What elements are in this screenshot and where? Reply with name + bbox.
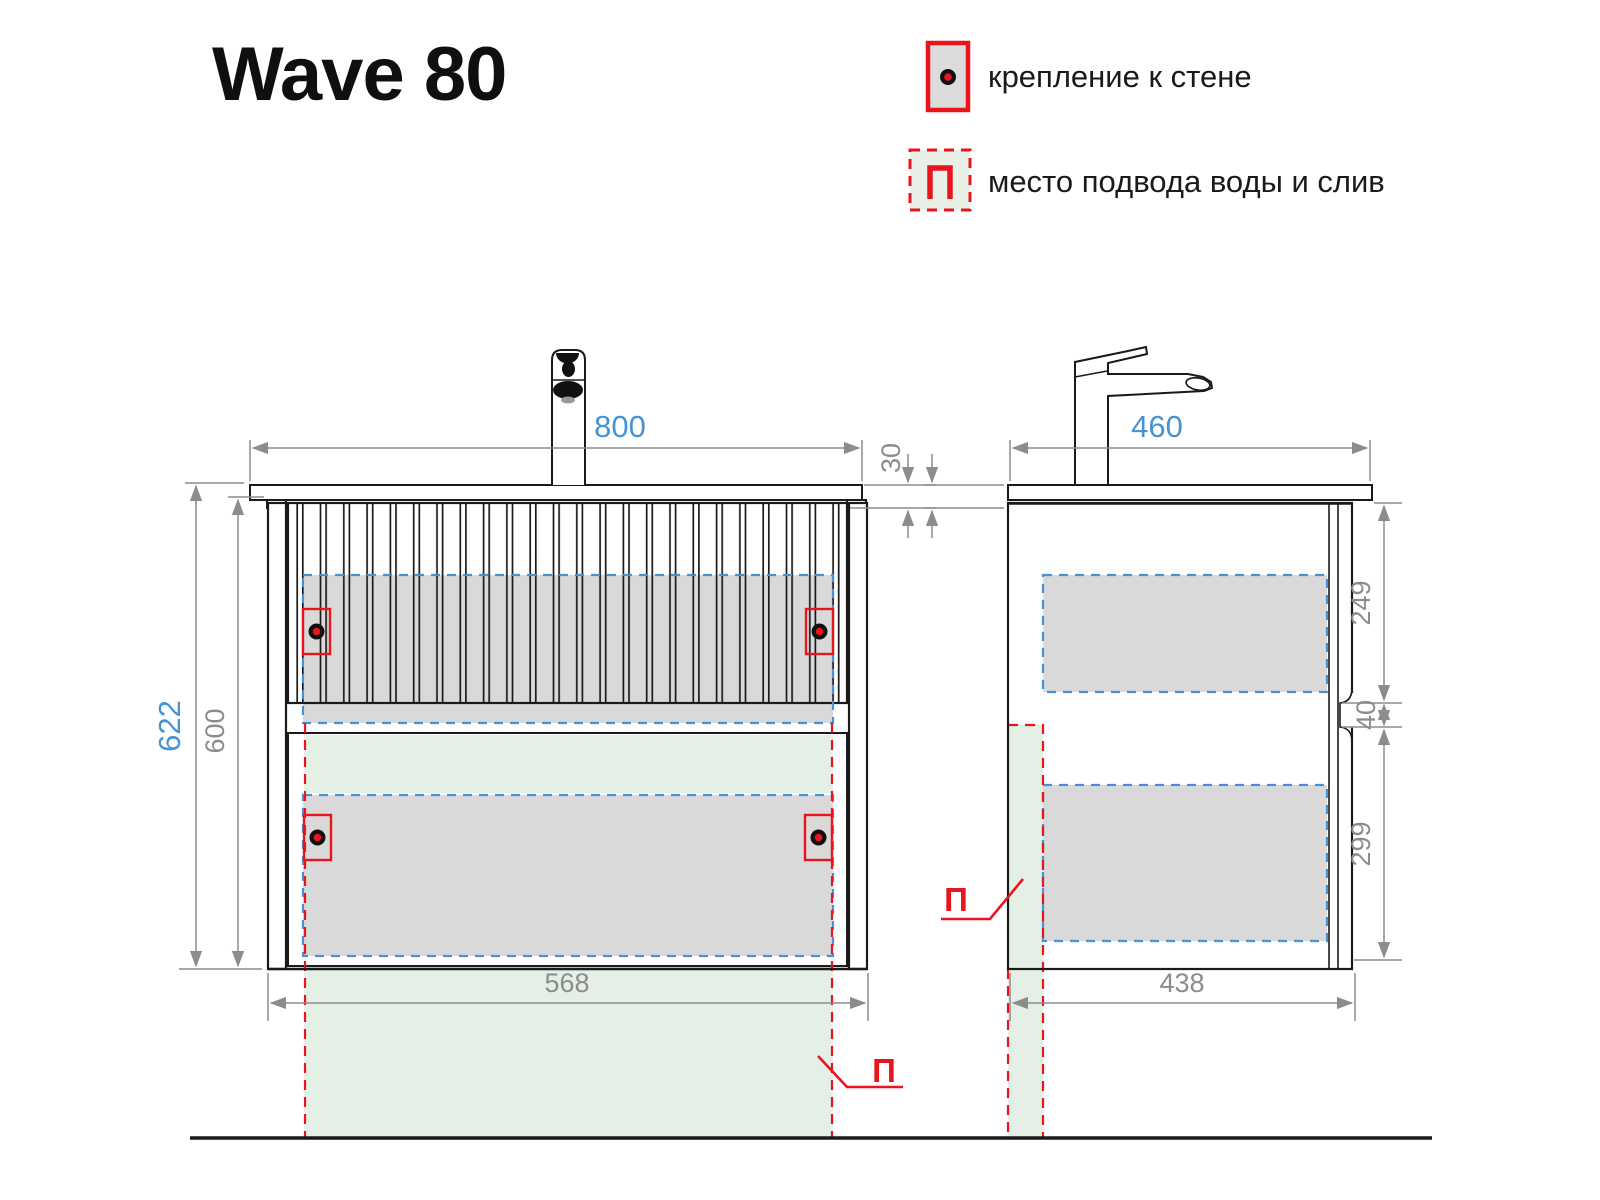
dim-label-438: 438 bbox=[1159, 968, 1204, 998]
dim-label-460: 460 bbox=[1131, 409, 1183, 444]
dim-side-top-depth: 460 bbox=[1010, 409, 1370, 481]
water-callout-front-label: П bbox=[872, 1052, 896, 1089]
water-supply-legend-label: место подвода воды и слив bbox=[988, 164, 1385, 199]
faucet-front bbox=[552, 350, 585, 485]
water-callout-side-label: П bbox=[944, 881, 968, 918]
lower-drawer-box-side bbox=[1043, 785, 1327, 941]
dim-side-bottom-depth: 438 bbox=[1010, 968, 1355, 1021]
dim-side-countertop-thickness-marks bbox=[924, 454, 1004, 538]
dim-label-622: 622 bbox=[152, 700, 187, 752]
wall-mount-legend-icon bbox=[928, 43, 968, 110]
lower-drawer-box-front bbox=[303, 795, 833, 956]
page-title: Wave 80 bbox=[212, 32, 506, 117]
front-view: 800 30 622 600 568 bbox=[152, 350, 936, 1138]
dim-label-800: 800 bbox=[594, 409, 646, 444]
water-zone-side bbox=[1008, 725, 1043, 1138]
dim-label-299: 299 bbox=[1346, 821, 1376, 866]
water-supply-legend-icon bbox=[910, 150, 970, 210]
dim-lower-drawer-height: 299 bbox=[1346, 730, 1402, 960]
water-zone-front-upper-band bbox=[304, 735, 833, 793]
vanity-technical-drawing: Wave 80 крепление к стене место подвода … bbox=[0, 0, 1600, 1200]
left-side-panel bbox=[268, 503, 286, 969]
wall-mount-legend-label: крепление к стене bbox=[988, 59, 1252, 94]
dim-label-600: 600 bbox=[200, 708, 230, 753]
dim-label-30: 30 bbox=[876, 443, 906, 473]
dim-body-height: 600 bbox=[200, 497, 264, 966]
countertop-side bbox=[1008, 485, 1372, 500]
dim-label-568: 568 bbox=[544, 968, 589, 998]
dim-label-249: 249 bbox=[1346, 580, 1376, 625]
dim-drawer-gap: 40 bbox=[1342, 700, 1402, 730]
fluted-front-pattern bbox=[289, 504, 846, 702]
upper-drawer-box-side bbox=[1043, 575, 1327, 692]
countertop-front bbox=[250, 485, 862, 500]
dim-label-40: 40 bbox=[1351, 700, 1381, 730]
side-view: 460 249 40 299 bbox=[924, 347, 1402, 1138]
drawing-page: Wave 80 крепление к стене место подвода … bbox=[0, 0, 1600, 1200]
right-side-panel bbox=[849, 503, 867, 969]
legend: крепление к стене место подвода воды и с… bbox=[910, 43, 1385, 210]
